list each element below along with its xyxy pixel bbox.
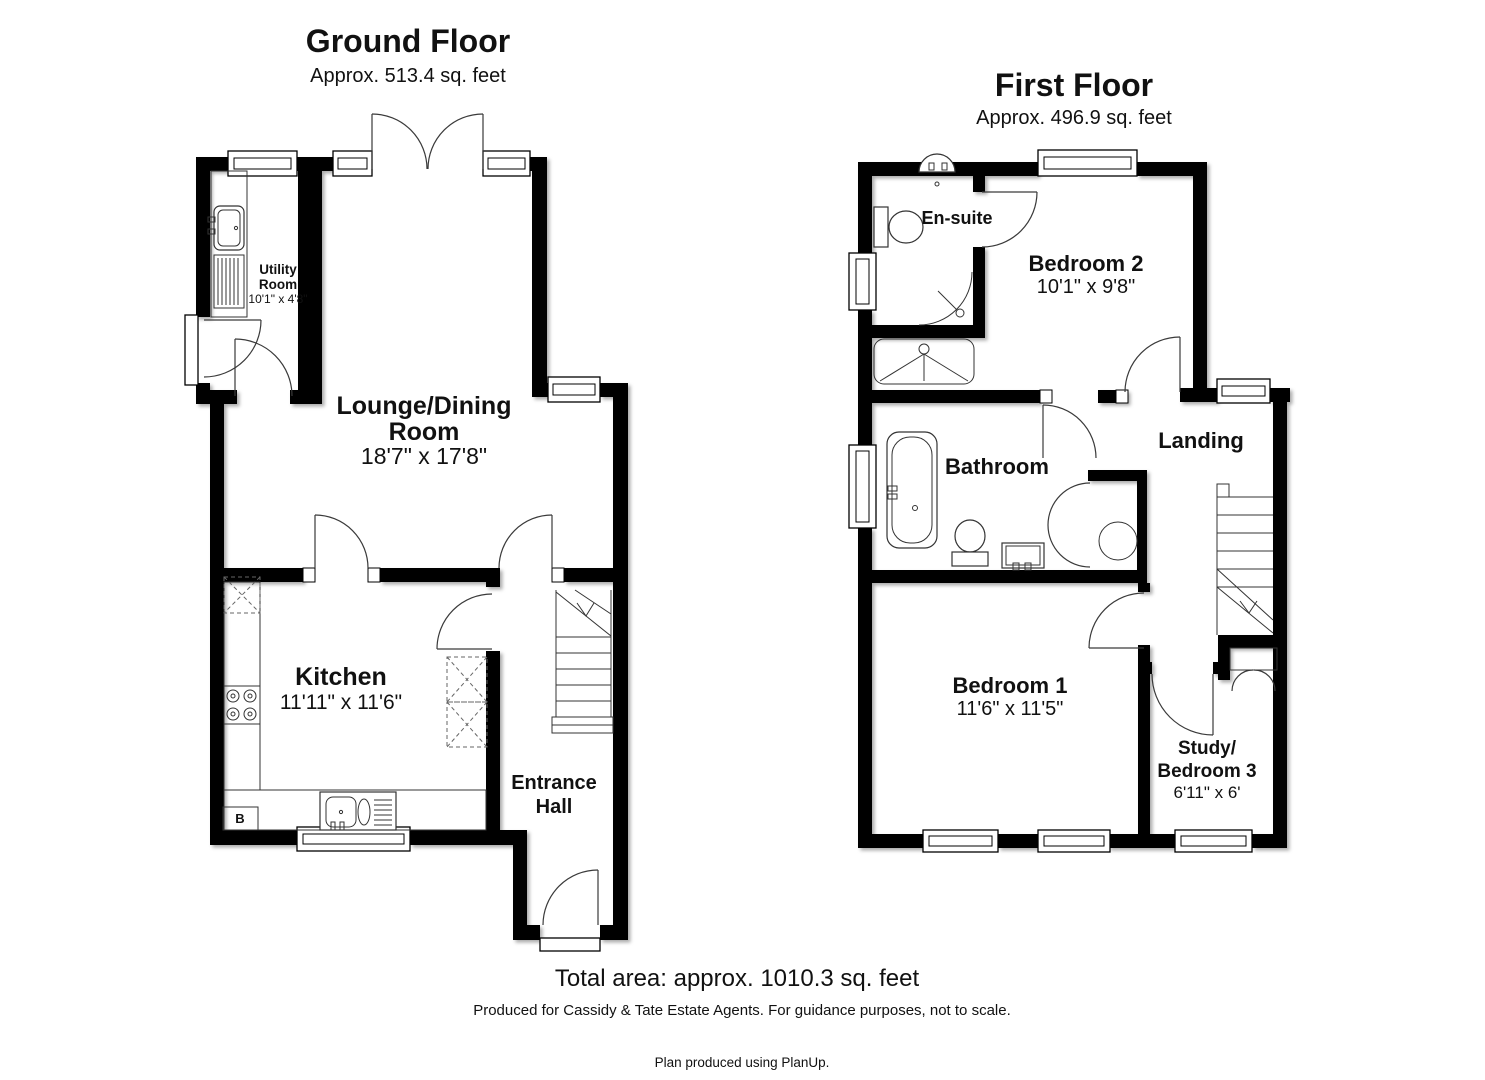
ground-labels: Ground Floor Approx. 513.4 sq. feet Util…: [235, 23, 596, 826]
utility-sink-unit: [208, 171, 247, 317]
bathroom-label: Bathroom: [945, 454, 1049, 479]
bathroom-window: [849, 445, 876, 528]
stairs-up-arrow: [577, 603, 594, 616]
floorplan-drawing: Ground Floor Approx. 513.4 sq. feet Util…: [0, 0, 1485, 1080]
kitchen-label: Kitchen: [295, 663, 387, 691]
ensuite-toilet: [874, 207, 923, 247]
lounge-kitchen-door: [315, 515, 368, 568]
study-label-2: Bedroom 3: [1157, 761, 1256, 782]
entrance-hall-label: Entrance: [511, 772, 597, 794]
first-floor-title: First Floor: [995, 67, 1153, 103]
utility-room-label-2: Room: [259, 277, 297, 292]
french-doors: [372, 114, 483, 169]
kitchen-cabinets-right: [447, 657, 487, 747]
bathroom-toilet: [952, 520, 988, 566]
lounge-window-right: [483, 151, 530, 176]
study-dims: 6'11" x 6': [1173, 783, 1240, 802]
study-cupboard-recess: [1230, 648, 1277, 670]
first-floor-plan: First Floor Approx. 496.9 sq. feet En-su…: [849, 67, 1290, 852]
airing-cupboard-door: [1048, 483, 1090, 567]
first-floor-area: Approx. 496.9 sq. feet: [976, 107, 1172, 129]
study-label: Study/: [1178, 738, 1237, 759]
lounge-hall-door: [499, 515, 552, 568]
utility-room-label: Utility: [259, 262, 297, 277]
front-door-threshold: [540, 938, 600, 951]
bedroom1-dims: 11'6" x 11'5": [957, 698, 1064, 720]
first-fixtures: [874, 154, 1137, 570]
utility-side-door: [204, 320, 261, 377]
bedroom2-door: [1125, 337, 1180, 392]
ensuite-label: En-suite: [921, 208, 992, 228]
bedroom2-window: [1038, 150, 1137, 176]
study-cupboard-doors: [1232, 670, 1275, 691]
study-door: [1152, 674, 1213, 735]
utility-room-dims: 10'1" x 4'8": [248, 292, 307, 306]
entrance-hall-label-2: Hall: [536, 796, 573, 818]
ground-stairs: [552, 590, 613, 733]
bedroom2-label: Bedroom 2: [1029, 251, 1144, 276]
lounge-side-window: [548, 377, 600, 402]
ensuite-window: [849, 253, 876, 310]
hot-water-cylinder: [1099, 522, 1137, 560]
ensuite-corner-shower: [919, 272, 972, 325]
kitchen-sink-unit: [320, 792, 396, 830]
ensuite-basin: [919, 154, 955, 186]
ground-fixtures: [208, 171, 487, 830]
utility-lounge-door: [235, 339, 292, 396]
kitchen-hall-door: [437, 594, 492, 649]
ground-floor-area: Approx. 513.4 sq. feet: [310, 65, 506, 87]
landing-label: Landing: [1158, 428, 1244, 453]
bathroom-door: [1043, 405, 1096, 458]
front-door: [543, 870, 598, 925]
lounge-dims: 18'7" x 17'8": [361, 443, 487, 469]
bathtub: [887, 432, 937, 548]
ground-floor-title: Ground Floor: [306, 23, 510, 59]
water-tank: [874, 339, 974, 384]
floorplan-page: Ground Floor Approx. 513.4 sq. feet Util…: [0, 0, 1485, 1080]
lounge-window-left: [333, 151, 372, 176]
bedroom1-label: Bedroom 1: [953, 673, 1068, 698]
bedroom1-window-left: [923, 830, 998, 852]
lounge-label-2: Room: [389, 418, 460, 446]
boiler-label: B: [235, 811, 244, 826]
total-area-text: Total area: approx. 1010.3 sq. feet: [555, 965, 920, 992]
side-door-frame: [185, 315, 198, 385]
kitchen-dims: 11'11" x 11'6": [280, 691, 402, 714]
footer: Total area: approx. 1010.3 sq. feet Prod…: [473, 965, 1011, 1070]
bedroom1-window-right: [1038, 830, 1110, 852]
lounge-label: Lounge/Dining: [337, 392, 512, 420]
stair-newel-post: [1217, 484, 1229, 497]
disclaimer-text: Produced for Cassidy & Tate Estate Agent…: [473, 1002, 1011, 1019]
kitchen-hob: [224, 686, 260, 724]
landing-window: [1217, 379, 1270, 403]
study-window: [1175, 830, 1252, 852]
bedroom2-dims: 10'1" x 9'8": [1037, 276, 1136, 298]
credit-text: Plan produced using PlanUp.: [655, 1055, 830, 1070]
utility-window: [228, 151, 297, 176]
ground-floor-plan: Ground Floor Approx. 513.4 sq. feet Util…: [185, 23, 628, 951]
bedroom1-door: [1089, 593, 1144, 648]
bathroom-basin: [1002, 543, 1044, 570]
